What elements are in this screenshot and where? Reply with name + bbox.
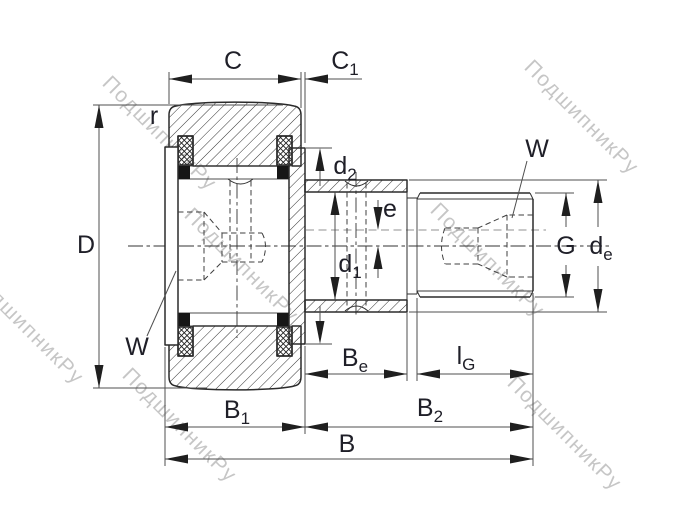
dim-label-D: D [77, 231, 95, 259]
arrowhead [562, 193, 571, 216]
arrowhead [510, 423, 533, 432]
dim-label-d1: d1 [338, 250, 361, 282]
arrowhead [165, 455, 188, 464]
arrowhead [95, 105, 104, 128]
arrowhead [331, 277, 340, 300]
technical-drawing-page: ПодшипникРу ПодшипникРу ПодшипникРу Подш… [0, 0, 694, 521]
arrowhead [95, 365, 104, 388]
dim-label-lg: lG [457, 342, 476, 374]
dim-label-de: de [589, 232, 612, 264]
arrowhead [374, 207, 383, 230]
dim-label-w-right: W [525, 135, 549, 163]
leader-line-w-right [512, 161, 527, 218]
dim-label-c1: C1 [331, 47, 359, 79]
arrowhead [316, 148, 325, 171]
arrowhead [282, 423, 305, 432]
arrowhead [384, 370, 407, 379]
watermark-text: ПодшипникРу [0, 266, 88, 390]
dim-label-d2: d2 [333, 152, 356, 184]
needle-band-bottom [178, 313, 289, 326]
arrowhead [169, 75, 192, 84]
needle-end-block [178, 313, 190, 326]
arrowhead [374, 246, 383, 269]
seal-top-left [178, 136, 193, 165]
arrowhead [305, 75, 328, 84]
cam-follower-section-drawing: ПодшипникРу ПодшипникРу ПодшипникРу Подш… [0, 0, 694, 521]
seal-bottom-left [178, 327, 193, 356]
arrowhead [305, 370, 328, 379]
dim-label-r: r [150, 102, 158, 130]
arrowhead [316, 321, 325, 344]
dim-label-G: G [556, 232, 575, 260]
watermark-text: ПодшипникРу [426, 199, 550, 323]
arrowhead [331, 192, 340, 215]
thread-chamfer [530, 193, 533, 199]
dim-label-c: C [224, 47, 242, 75]
right-flange-washer [289, 148, 305, 344]
arrowhead [510, 455, 533, 464]
needle-end-block [178, 166, 190, 179]
dim-label-b: B [339, 430, 356, 458]
dim-label-b2: B2 [417, 394, 443, 426]
arrowhead [278, 75, 301, 84]
arrowhead [417, 370, 440, 379]
arrowhead [594, 289, 603, 312]
watermark-text: ПодшипникРу [180, 204, 304, 328]
arrowhead [562, 274, 571, 297]
arrowhead [594, 180, 603, 203]
dim-label-be: Be [342, 344, 368, 376]
watermark-text: ПодшипникРу [503, 372, 627, 496]
dim-label-b1: B1 [224, 396, 250, 428]
thread-chamfer [417, 291, 420, 297]
dim-label-e: e [383, 195, 397, 223]
thread-chamfer [417, 193, 420, 199]
needle-end-block [277, 313, 289, 326]
needle-end-block [277, 166, 289, 179]
left-washer [165, 147, 178, 345]
dim-label-w-left: W [125, 333, 149, 361]
arrowhead [305, 423, 328, 432]
